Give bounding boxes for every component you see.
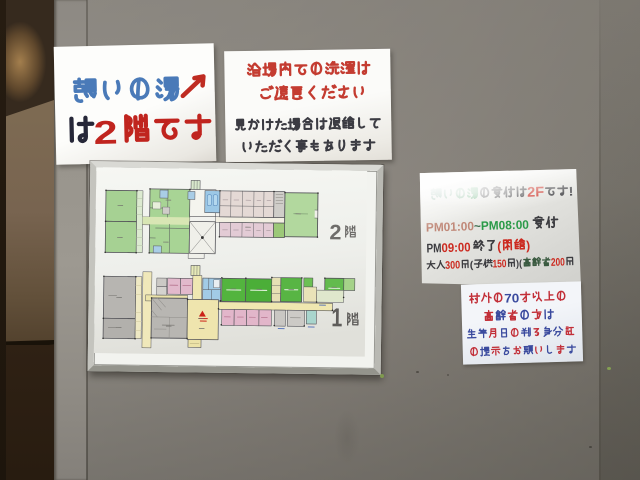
- svg-text:70: 70: [504, 291, 519, 305]
- svg-text:1: 1: [331, 302, 342, 332]
- svg-text:150: 150: [492, 258, 506, 270]
- svg-text:(: (: [497, 239, 502, 253]
- svg-text:PM: PM: [426, 241, 441, 255]
- svg-text:200: 200: [551, 257, 565, 269]
- svg-text:2: 2: [329, 221, 341, 244]
- svg-text:2: 2: [93, 113, 118, 151]
- svg-text:): ): [526, 239, 530, 253]
- svg-text:300: 300: [445, 259, 460, 271]
- svg-text:)(: )(: [516, 259, 523, 270]
- svg-text:09:00: 09:00: [441, 240, 470, 255]
- svg-text:(: (: [470, 260, 474, 271]
